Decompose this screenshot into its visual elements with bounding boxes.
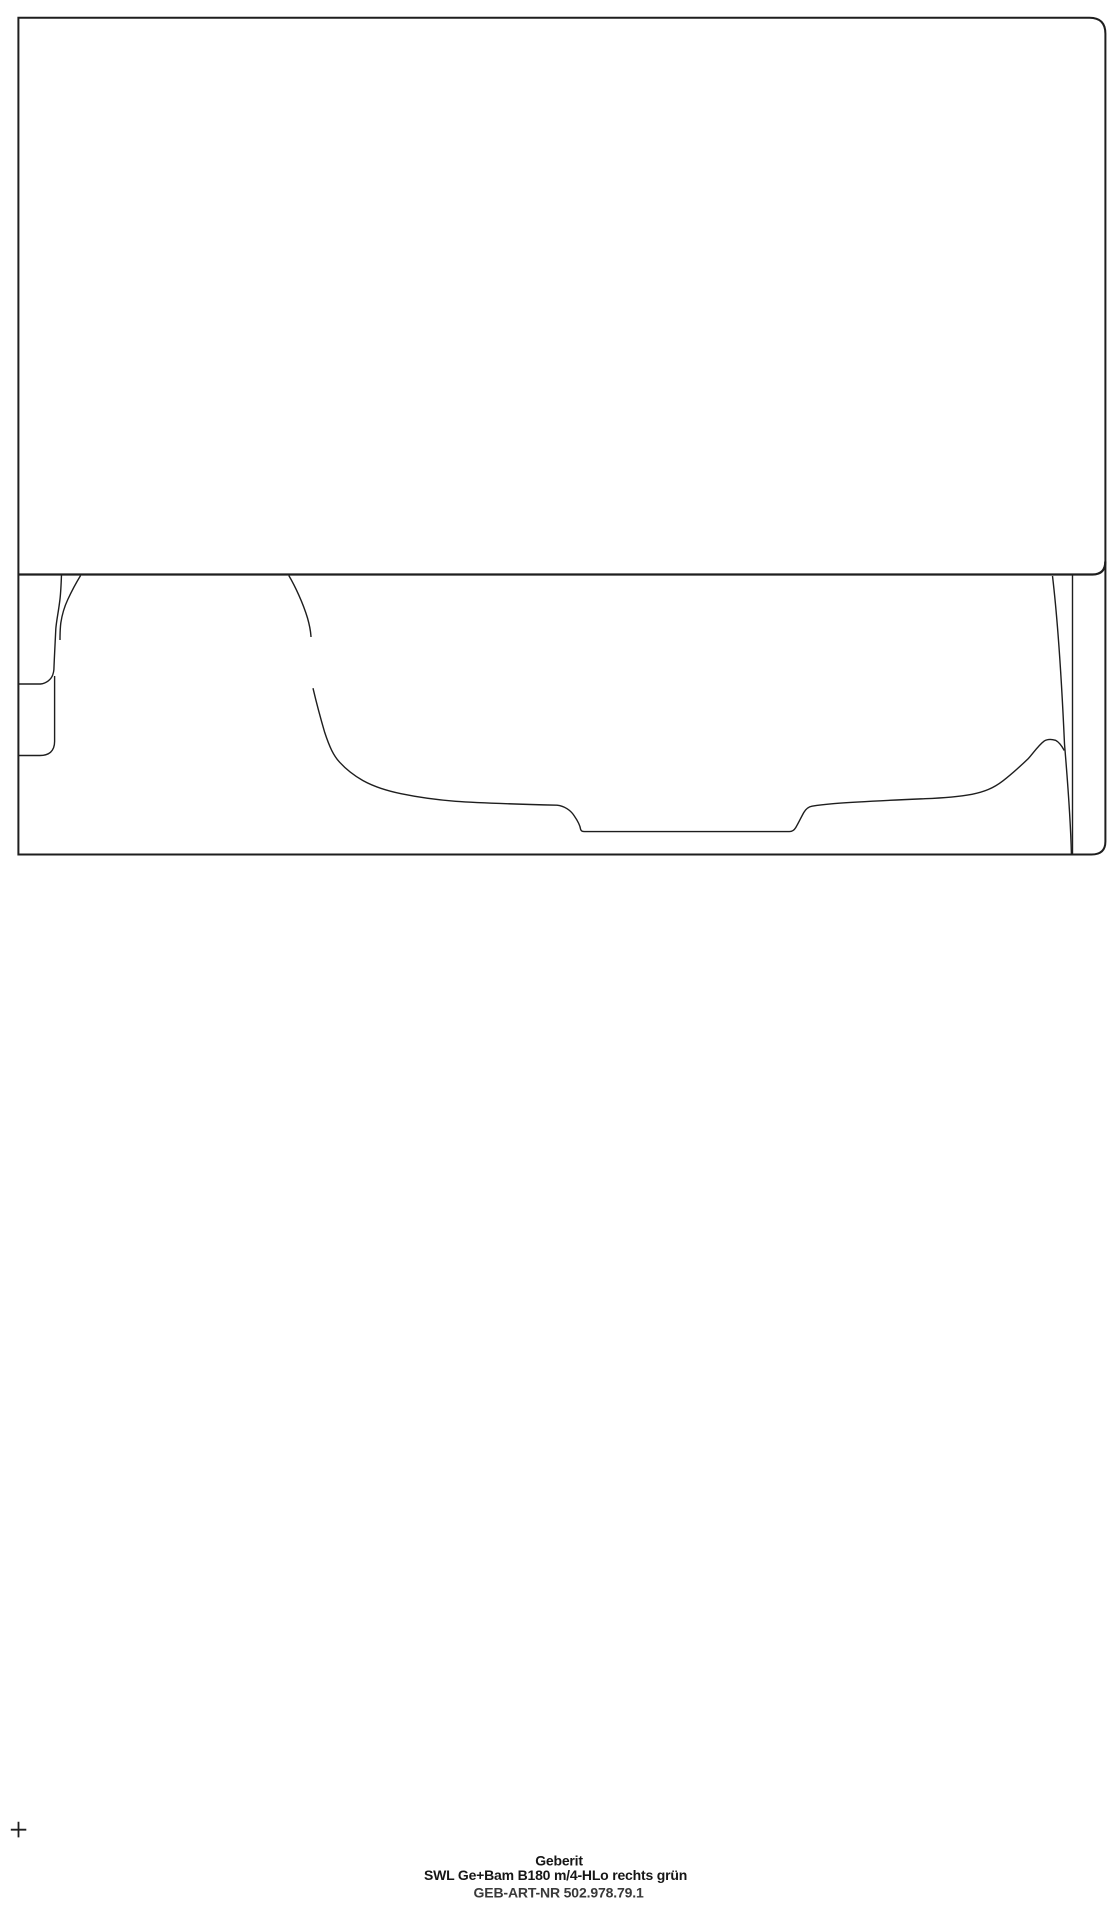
svg-text:SWL Ge+Bam B180 m/4-HLo rechts: SWL Ge+Bam B180 m/4-HLo rechts grün bbox=[424, 1867, 687, 1883]
svg-text:GEB-ART-NR 502.978.79.1: GEB-ART-NR 502.978.79.1 bbox=[474, 1884, 644, 1900]
